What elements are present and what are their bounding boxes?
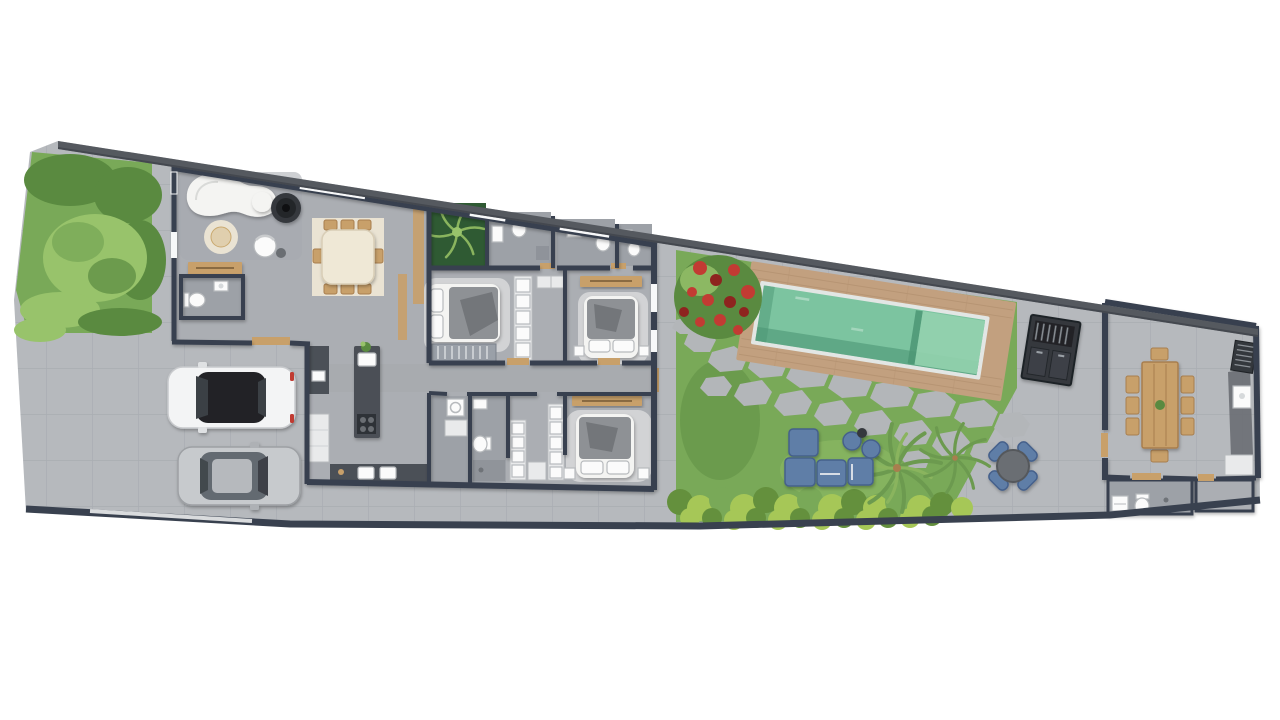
bedroom-1 (424, 278, 510, 361)
kitchen-counter-left (309, 346, 329, 394)
door-threshold (1132, 473, 1161, 480)
table-plant (1155, 400, 1165, 410)
pillow (431, 315, 443, 338)
toilet-tank (184, 293, 189, 307)
shower-floor (473, 460, 505, 481)
deck-strip (413, 208, 424, 304)
ottoman (252, 192, 272, 212)
door-threshold (1198, 474, 1214, 481)
side-table (857, 428, 867, 438)
shower (536, 246, 549, 260)
shelving-unit (514, 276, 532, 360)
toilet (189, 293, 205, 307)
silver-car (178, 442, 300, 510)
white-car (168, 362, 295, 433)
built-in-grill (1231, 340, 1257, 373)
nightstand (574, 346, 584, 356)
dining-set (312, 218, 384, 296)
pool-tanning-ledge (914, 311, 985, 374)
front-garden (14, 152, 166, 342)
flower-bush (674, 255, 762, 339)
mirror (250, 442, 259, 448)
floor-plan-page (0, 0, 1280, 720)
sink (473, 399, 487, 409)
nightstand (638, 468, 649, 479)
door-threshold (1101, 433, 1108, 457)
shower-drain (479, 468, 484, 473)
toilet (473, 436, 487, 452)
outdoor-bbq (1021, 315, 1080, 386)
pillow (607, 461, 629, 474)
laundry-counter (445, 420, 467, 436)
deck-strip (398, 274, 407, 340)
entry-threshold (252, 337, 290, 345)
closet-bench (528, 462, 546, 480)
door-threshold (507, 358, 529, 365)
dining-table (322, 230, 374, 284)
counter-cabinet (1225, 455, 1253, 475)
nightstand (564, 468, 575, 479)
nightstand (639, 346, 649, 356)
coffee-table (211, 227, 231, 247)
roof (212, 459, 252, 493)
door-threshold (598, 358, 620, 365)
sink (492, 226, 503, 242)
mirror (198, 427, 207, 433)
mirror (198, 362, 207, 368)
side-table (276, 248, 286, 258)
mirror (250, 504, 259, 510)
pillow (431, 289, 443, 312)
bottle (338, 469, 344, 475)
pillow (581, 461, 603, 474)
pouf (862, 440, 880, 458)
kitchen-cabinets (309, 414, 329, 462)
kitchen-sink-left (312, 371, 325, 381)
pillow (589, 340, 610, 352)
taillight (290, 372, 294, 381)
island-sink (358, 353, 376, 366)
taillight (290, 414, 294, 423)
washing-machine (447, 399, 464, 416)
shower-drain (1164, 498, 1169, 503)
floor-plan-svg (0, 0, 1280, 720)
pillow (613, 340, 634, 352)
